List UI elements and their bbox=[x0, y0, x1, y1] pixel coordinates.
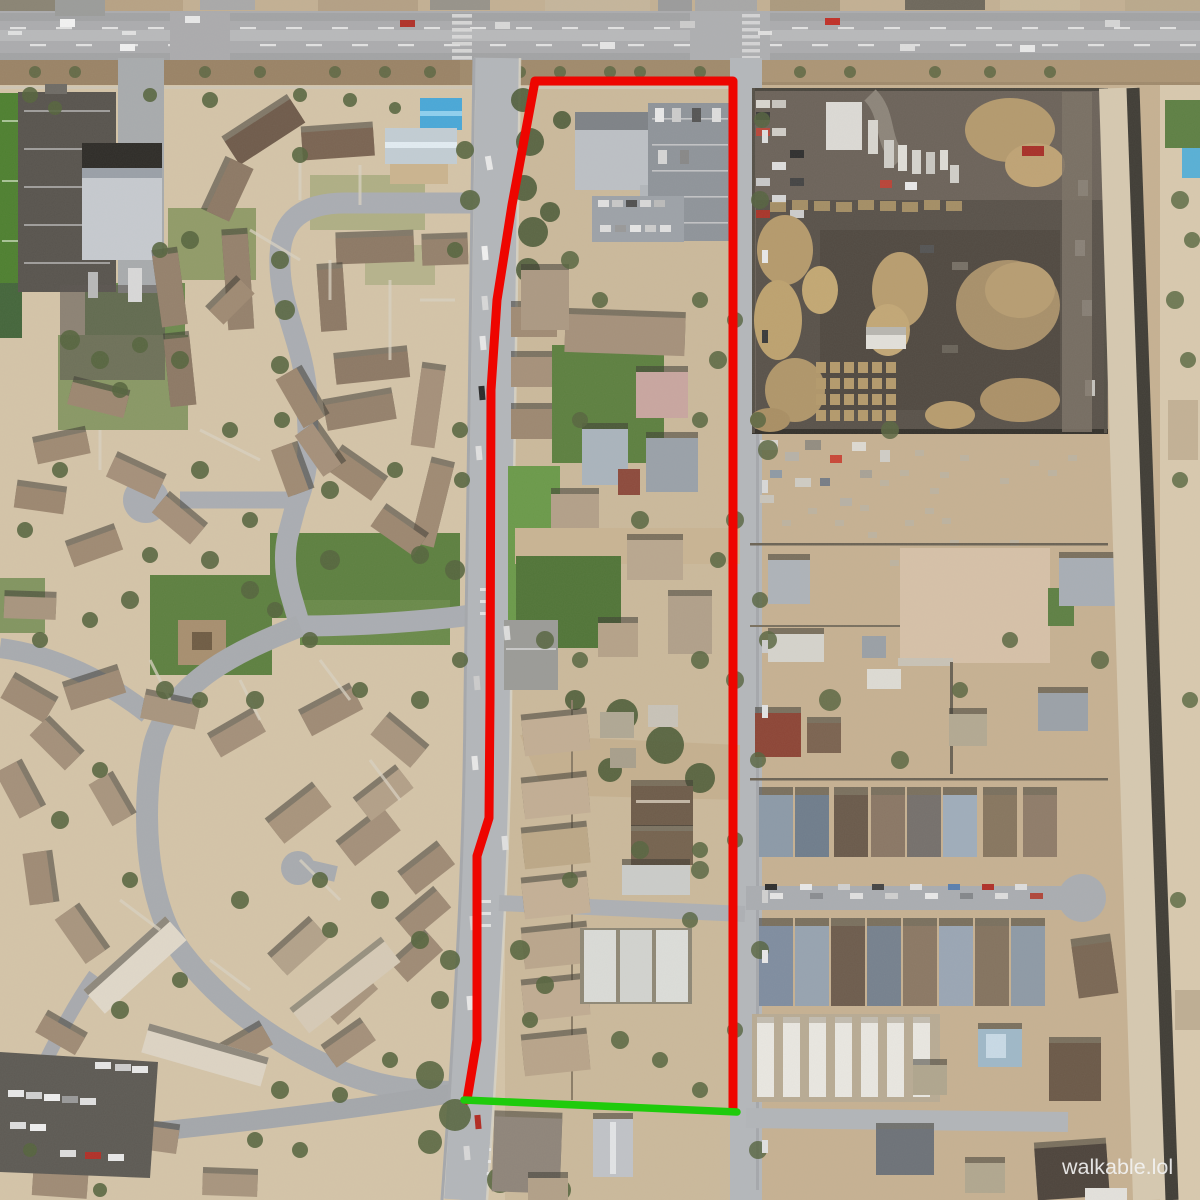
svg-text:walkable.lol: walkable.lol bbox=[1061, 1155, 1173, 1179]
